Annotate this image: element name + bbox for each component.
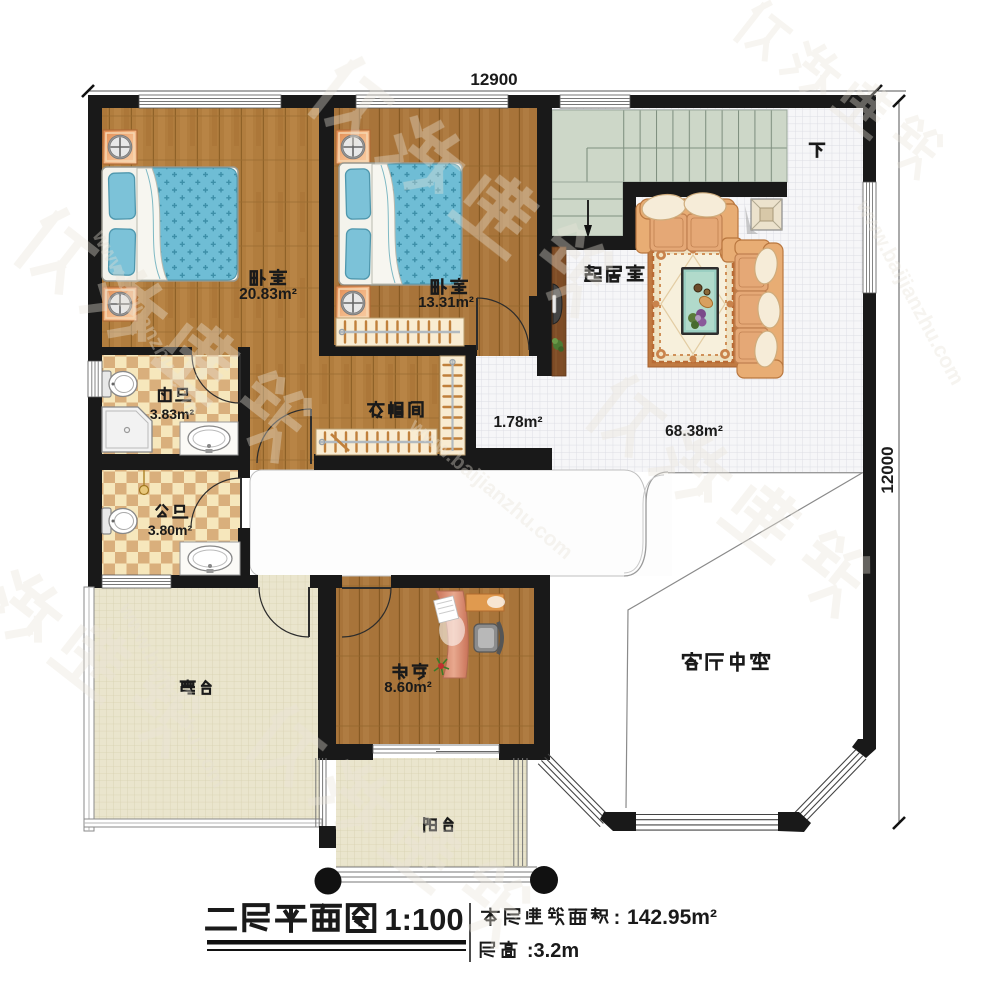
svg-text:3.80m²: 3.80m² [148,522,193,538]
svg-text::: : [614,907,621,929]
svg-text:12900: 12900 [470,70,517,89]
svg-text:20.83m²: 20.83m² [239,286,297,303]
svg-text:12000: 12000 [878,446,897,493]
svg-text::3.2m: :3.2m [527,940,579,962]
svg-text:1.78m²: 1.78m² [493,414,542,431]
svg-text:142.95m²: 142.95m² [627,906,717,929]
svg-text:8.60m²: 8.60m² [384,679,432,696]
svg-text:1:100: 1:100 [384,902,463,937]
svg-text:13.31m²: 13.31m² [418,294,474,311]
svg-text:68.38m²: 68.38m² [665,423,723,440]
